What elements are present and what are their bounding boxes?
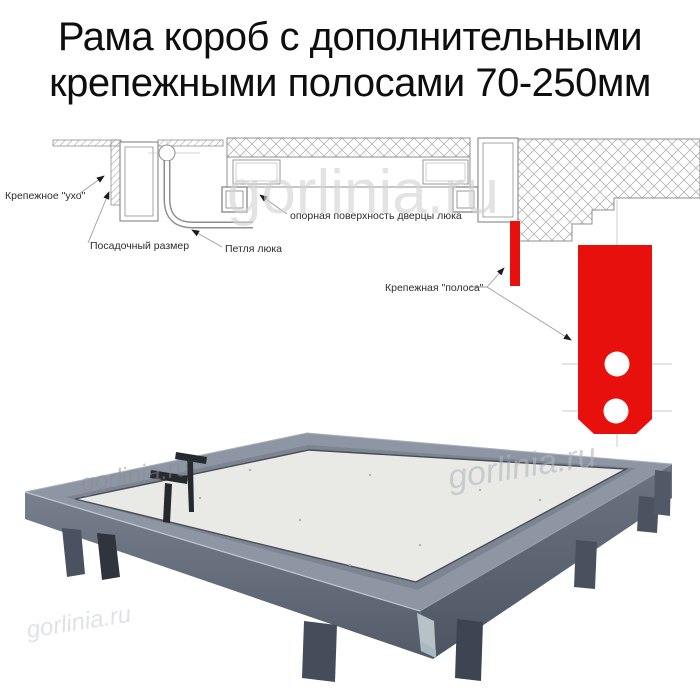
- wall-mass-hatched: [518, 139, 700, 241]
- door-finish-band: [227, 138, 470, 157]
- frame-profile-left-inner: [125, 147, 153, 216]
- label-mounting-strip: Крепежная "полоса": [385, 282, 484, 294]
- leader-mounting-strip-a: [487, 268, 504, 287]
- mounting-ear-strip: [111, 140, 120, 205]
- label-seating-size: Посадочный размер: [90, 240, 189, 252]
- strip-hole-top: [605, 352, 630, 377]
- strip-hole-bottom: [604, 399, 629, 424]
- watermark-diagram: gorlinia.ru: [227, 158, 499, 227]
- leg-right-3: [654, 470, 671, 516]
- product-card: Рама короб с дополнительными крепежными …: [0, 0, 700, 700]
- leader-seating-size: [88, 192, 109, 243]
- leg-front-1: [302, 621, 337, 682]
- leader-mounting-strip-b: [487, 287, 571, 340]
- hinge-pivot-circle: [159, 145, 175, 161]
- label-mounting-ear: Крепежное "ухо": [5, 190, 86, 202]
- product-figure: Крепежное "ухо" Посадочный размер Петля …: [0, 0, 700, 700]
- watermark-photo-bottom: gorlinia.ru: [25, 601, 133, 644]
- label-hatch-hinge: Петля люка: [225, 243, 282, 255]
- mounting-strip-section-red: [510, 221, 520, 286]
- leg-front-2: [455, 619, 483, 681]
- leg-right-1: [574, 540, 597, 589]
- leader-hatch-hinge: [192, 230, 222, 247]
- leader-mounting-ear: [79, 176, 104, 194]
